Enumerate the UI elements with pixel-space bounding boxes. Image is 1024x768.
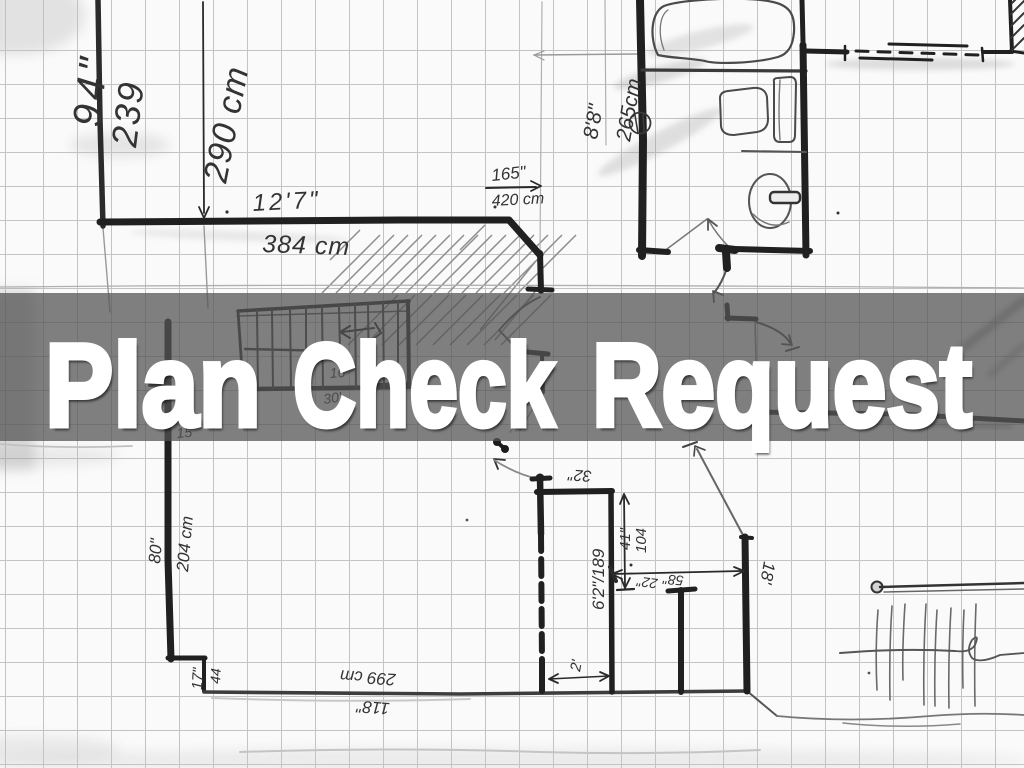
svg-text:32": 32" xyxy=(566,465,592,484)
svg-text:44: 44 xyxy=(207,668,224,685)
svg-text:22": 22" xyxy=(635,573,659,592)
svg-text:165": 165" xyxy=(490,162,527,185)
svg-text:239: 239 xyxy=(103,78,152,150)
svg-text:18': 18' xyxy=(756,560,779,586)
svg-text:204 cm: 204 cm xyxy=(173,515,197,573)
svg-text:58": 58" xyxy=(661,571,684,589)
svg-text:118": 118" xyxy=(355,697,390,718)
svg-text:384 cm: 384 cm xyxy=(262,230,351,261)
svg-text:41": 41" xyxy=(617,527,634,550)
svg-text:420 cm: 420 cm xyxy=(491,190,544,210)
svg-text:8'8": 8'8" xyxy=(579,101,608,141)
svg-text:12'7": 12'7" xyxy=(252,186,321,217)
svg-text:80": 80" xyxy=(145,537,166,564)
svg-text:17": 17" xyxy=(189,667,207,691)
svg-text:6'2"/189: 6'2"/189 xyxy=(589,548,608,610)
svg-text:299 cm: 299 cm xyxy=(339,666,397,689)
svg-text:290 cm: 290 cm xyxy=(196,63,256,187)
svg-text:104: 104 xyxy=(633,528,650,553)
svg-text:2': 2' xyxy=(567,658,586,674)
